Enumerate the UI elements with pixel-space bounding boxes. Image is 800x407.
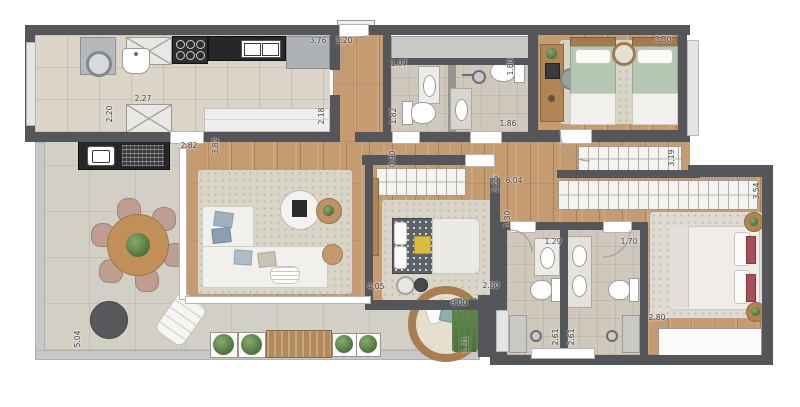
dimension-label: 3.76 <box>310 37 327 45</box>
dimension-label: 2.80 <box>483 282 500 290</box>
dimension-label: 2.80 <box>649 314 666 322</box>
dimension-label: 1.31 <box>462 337 470 354</box>
dimension-layer: 3.761.202.272.202.181.071.821.801.863.30… <box>0 0 800 407</box>
dimension-label: 1.80 <box>507 59 515 76</box>
dimension-label: 5.04 <box>74 331 82 348</box>
dimension-label: 0.90 <box>389 151 397 168</box>
dimension-label: 2.61 <box>568 329 576 346</box>
dimension-label: 2.82 <box>181 142 198 150</box>
dimension-label: 6.04 <box>506 177 523 185</box>
dimension-label: 2.65 <box>492 176 500 193</box>
dimension-label: 1.86 <box>500 120 517 128</box>
dimension-label: 1.29 <box>545 238 562 246</box>
dimension-label: 2.18 <box>318 108 326 125</box>
dimension-label: 3.30 <box>655 36 672 44</box>
dimension-label: 1.70 <box>621 238 638 246</box>
dimension-label: 3.54 <box>753 183 761 200</box>
floor-plan: 3.761.202.272.202.181.071.821.801.863.30… <box>0 0 800 407</box>
dimension-label: 1.30 <box>504 211 512 228</box>
dimension-label: 2.20 <box>106 106 114 123</box>
dimension-label: 4.05 <box>368 283 385 291</box>
dimension-label: 2.61 <box>552 329 560 346</box>
dimension-label: 9.00 <box>451 299 468 307</box>
dimension-label: 3.82 <box>212 138 220 155</box>
dimension-label: 3.19 <box>668 150 676 167</box>
dimension-label: 1.07 <box>391 60 408 68</box>
dimension-label: 2.27 <box>135 95 152 103</box>
dimension-label: 1.82 <box>390 108 398 125</box>
dimension-label: 1.20 <box>336 37 353 45</box>
